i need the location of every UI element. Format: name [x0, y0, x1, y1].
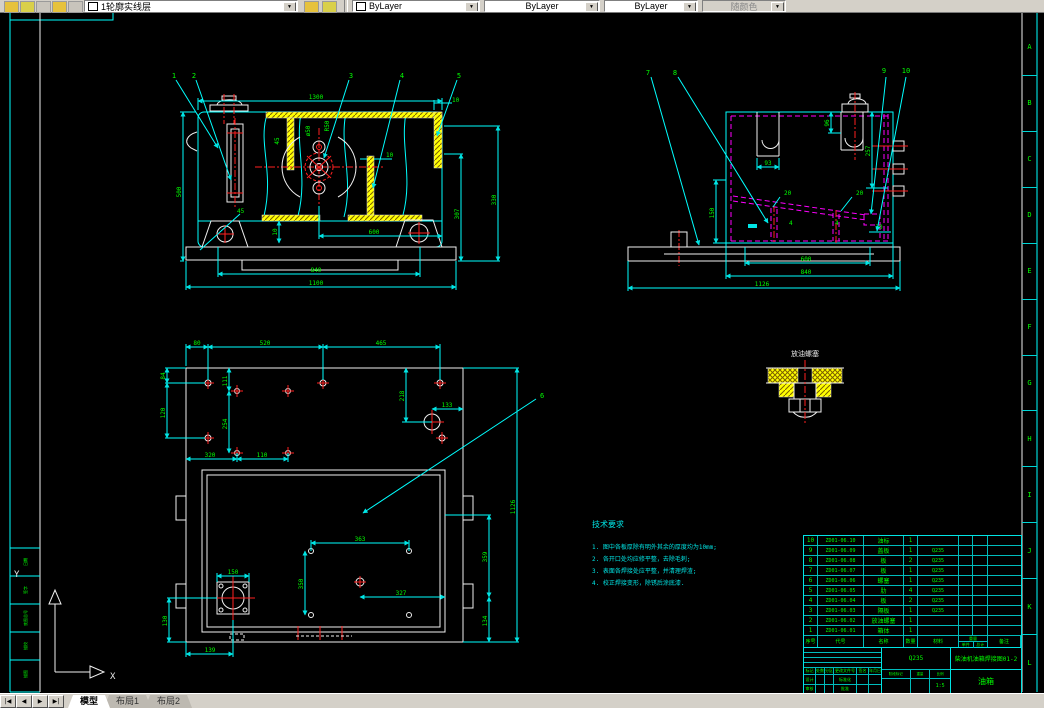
balloon-label: 9 [882, 67, 886, 75]
bom-total-weight [973, 546, 988, 555]
dim-label: 330 [491, 194, 498, 205]
model-space-canvas[interactable]: 日期 签字 底图总号 描校 描图 Y X [0, 12, 1044, 693]
weld-label: 4 [835, 220, 839, 227]
zone-label: K [1022, 579, 1037, 635]
lineweight-value: ByLayer [634, 1, 667, 11]
drawing-number: 柴油机油箱焊接图01-2 [951, 648, 1021, 670]
bom-remark [988, 596, 1021, 605]
zone-label: B [1022, 76, 1037, 132]
side-view: 96 257 93 150 20 20 30 4 4 600 840 1126 … [628, 67, 910, 291]
drawing-name: 油箱 [951, 670, 1021, 693]
dim-label: 45 [237, 208, 245, 215]
bom-unit-weight [959, 626, 973, 635]
dim-label: 84 [160, 372, 167, 380]
bom-remark [988, 626, 1021, 635]
bom-qty: 1 [904, 626, 918, 635]
tab-layout2[interactable]: 布局2 [145, 695, 192, 708]
bom-name: 盖板 [864, 546, 904, 555]
bom-no: 6 [804, 576, 818, 585]
layer-previous-icon[interactable] [322, 1, 337, 13]
bom-header-no: 序号 [804, 636, 818, 647]
weld-mark [748, 224, 757, 228]
bom-row: 2 ZD01-06.02 放油螺塞 1 [804, 616, 1021, 626]
bom-code: ZD01-06.04 [818, 596, 864, 605]
bom-total-weight [973, 586, 988, 595]
dim-label: 1100 [309, 280, 324, 287]
plan-holes [202, 377, 448, 640]
zone-label: G [1022, 356, 1037, 412]
dim-label: 500 [176, 186, 183, 197]
dim-label: 1126 [755, 281, 770, 288]
lineweight-dropdown[interactable]: ByLayer ▼ [604, 0, 698, 12]
dim-label: 600 [801, 256, 812, 263]
bom-no: 10 [804, 536, 818, 545]
bom-name: 油标 [864, 536, 904, 545]
dim-label: 218 [399, 390, 406, 401]
layer-plot-icon[interactable] [52, 1, 67, 13]
layer-name: 1轮廓实线层 [101, 0, 151, 12]
balloon-label: 7 [646, 69, 650, 77]
bom-material: Q235 [918, 546, 959, 555]
bom-remark [988, 556, 1021, 565]
layer-freeze-icon[interactable] [20, 1, 35, 13]
tab-last-button[interactable]: ▶| [48, 695, 64, 708]
revision-grid: 标记 处数 分区 更改文件号 签名 年月日 设计 标准化 审核 批准 [804, 648, 881, 693]
notes-title: 技术要求 [592, 519, 624, 529]
zone-label: D [1022, 188, 1037, 244]
bom-total-weight [973, 576, 988, 585]
dim-label: 80 [193, 340, 201, 347]
dim-label: 320 [205, 452, 216, 459]
front-dimensions: 1300 500 330 307 10 10 45 ø50 R50 45 10 … [176, 94, 500, 290]
oil-level-gauge [227, 118, 243, 208]
bom-no: 8 [804, 556, 818, 565]
toolbar-separator [344, 0, 348, 12]
bom-total-weight [973, 626, 988, 635]
bom-unit-weight [959, 596, 973, 605]
bom-remark [988, 566, 1021, 575]
layer-color-chip [88, 2, 98, 11]
balloon-label: 6 [540, 392, 544, 400]
linetype-value: ByLayer [525, 1, 558, 11]
plotstyle-value: 随颜色 [730, 0, 757, 12]
bom-remark [988, 586, 1021, 595]
linetype-dropdown[interactable]: ByLayer ▼ [484, 0, 600, 12]
bom-row: 3 ZD01-06.03 隔板 1 Q235 [804, 606, 1021, 616]
dim-label: 465 [376, 340, 387, 347]
plan-view: 80 520 465 84 120 111 254 218 133 320 11… [160, 340, 544, 657]
dim-label: ø50 [305, 125, 312, 136]
layer-properties-toolbar: 1轮廓实线层 ▼ ByLayer ▼ ByLayer ▼ ByLayer ▼ 随… [0, 0, 1044, 13]
dim-label: 520 [260, 340, 271, 347]
bom-qty: 1 [904, 536, 918, 545]
bom-name: 放油螺塞 [864, 616, 904, 625]
bom-header-name: 名称 [864, 636, 904, 647]
tb-approve: 批准 [834, 685, 857, 693]
dim-label: 1300 [309, 94, 324, 101]
color-swatch [356, 2, 366, 11]
bom-qty: 2 [904, 596, 918, 605]
balloon-leader [363, 399, 536, 513]
bom-header-material: 材料 [918, 636, 959, 647]
bom-code: ZD01-06.06 [818, 576, 864, 585]
zone-label: C [1022, 132, 1037, 188]
chevron-down-icon[interactable]: ▼ [465, 2, 478, 12]
filler-cap [210, 94, 248, 124]
bom-header-weight-group: 重量 单件 总计 [959, 636, 988, 647]
tb-material: Q235 [882, 648, 950, 670]
note-line: 1. 图中各板厚除有明外其余的厚度均为10mm; [592, 543, 717, 551]
tb-date: 年月日 [869, 668, 881, 674]
bom-row: 1 ZD01-06.01 箱体 1 [804, 626, 1021, 636]
bom-qty: 1 [904, 606, 918, 615]
bom-no: 9 [804, 546, 818, 555]
tb-audit: 审核 [804, 685, 816, 693]
dim-label: 133 [442, 402, 453, 409]
bom-unit-weight [959, 536, 973, 545]
bom-qty: 1 [904, 546, 918, 555]
ucs-icon: Y X [14, 570, 116, 682]
layer-visibility-icon[interactable] [4, 1, 19, 13]
balloon-label: 8 [673, 69, 677, 77]
zone-label: F [1022, 300, 1037, 356]
tb-zone: 分区 [825, 668, 834, 674]
bom-material [918, 626, 959, 635]
bom-no: 5 [804, 586, 818, 595]
bom-row: 7 ZD01-06.07 板 1 Q235 [804, 566, 1021, 576]
dim-label: 20 [856, 190, 864, 197]
internal-brackets [757, 112, 863, 156]
bom-total-weight [973, 606, 988, 615]
bom-qty: 4 [904, 586, 918, 595]
bom-total-weight [973, 566, 988, 575]
bom-row: 8 ZD01-06.08 板 2 Q235 [804, 556, 1021, 566]
weld-label: 4 [789, 220, 793, 227]
ucs-x-label: X [110, 672, 116, 682]
bom-name: 肋 [864, 586, 904, 595]
bom-material: Q235 [918, 586, 959, 595]
dim-label: R50 [324, 120, 331, 131]
bom-material: Q235 [918, 576, 959, 585]
bom-no: 2 [804, 616, 818, 625]
tb-scale-value: 1:5 [930, 679, 950, 693]
bom-code: ZD01-06.10 [818, 536, 864, 545]
bom-material: Q235 [918, 566, 959, 575]
bom-qty: 2 [904, 556, 918, 565]
bom-unit-weight [959, 546, 973, 555]
tb-scale-label: 比例 [930, 670, 950, 678]
strip-label: 描图 [22, 670, 28, 678]
balloon-label: 4 [400, 72, 404, 80]
chevron-down-icon[interactable]: ▼ [585, 2, 598, 12]
zone-label: I [1022, 467, 1037, 523]
make-layer-current-icon[interactable] [304, 1, 319, 13]
dim-label: 96 [824, 119, 831, 127]
strip-label: 签字 [22, 586, 28, 594]
bom-name: 箱体 [864, 626, 904, 635]
tab-first-button[interactable]: |◀ [0, 695, 16, 708]
layer-color-icon [68, 1, 83, 13]
tb-weight-label: 重量 [911, 670, 931, 678]
bom-total-weight [973, 616, 988, 625]
bom-unit-weight [959, 586, 973, 595]
note-line: 3. 表面各焊接处应平整，并清理焊渣; [592, 567, 696, 575]
front-balloons: 1 2 3 4 5 [172, 72, 461, 188]
balloon-label: 10 [902, 67, 910, 75]
ucs-y-label: Y [14, 570, 20, 580]
dim-label: 93 [764, 160, 772, 167]
strip-label: 日期 [22, 558, 28, 566]
bom-code: ZD01-06.02 [818, 616, 864, 625]
zone-column: ABCDEFGHIJKL [1022, 20, 1037, 690]
bom-name: 隔板 [864, 606, 904, 615]
layer-lock-icon[interactable] [36, 1, 51, 13]
bom-row: 9 ZD01-06.09 盖板 1 Q235 [804, 546, 1021, 556]
bom-unit-weight [959, 576, 973, 585]
bom-header: 序号 代号 名称 数量 材料 重量 单件 总计 备注 [804, 636, 1021, 648]
bom-header-remark: 备注 [988, 636, 1021, 647]
strip-label: 描校 [22, 642, 28, 650]
tb-design: 设计 [804, 675, 816, 684]
bom-code: ZD01-06.07 [818, 566, 864, 575]
mounting-feet [186, 220, 456, 270]
dim-label: 327 [396, 590, 407, 597]
bom-total-weight [973, 556, 988, 565]
bom-material: Q235 [918, 556, 959, 565]
zone-label: L [1022, 635, 1037, 690]
chevron-down-icon: ▼ [771, 2, 784, 12]
tab-next-button[interactable]: ▶ [32, 695, 48, 708]
dim-label: 30 [875, 224, 883, 231]
dim-label: 120 [160, 407, 167, 418]
lifting-hook [187, 132, 197, 151]
zone-label: H [1022, 411, 1037, 467]
bom-row: 10 ZD01-06.10 油标 1 [804, 536, 1021, 546]
bom-total-weight [973, 596, 988, 605]
bom-code: ZD01-06.03 [818, 606, 864, 615]
bom-code: ZD01-06.08 [818, 556, 864, 565]
color-value: ByLayer [369, 1, 402, 11]
dim-label: 254 [222, 418, 229, 429]
note-line: 2. 各开口处均应修平整，去除毛刺; [592, 555, 690, 563]
front-view: 1300 500 330 307 10 10 45 ø50 R50 45 10 … [172, 72, 500, 290]
dim-label: 257 [865, 145, 872, 156]
plotstyle-dropdown: 随颜色 ▼ [702, 0, 786, 12]
detail-title: 放油螺塞 [791, 349, 819, 358]
bom-rows: 10 ZD01-06.10 油标 1 9 ZD01-06.09 盖板 1 Q23… [804, 536, 1021, 636]
tab-model[interactable]: 模型 [68, 695, 110, 708]
zone-label: A [1022, 20, 1037, 76]
dim-label: 111 [222, 375, 229, 386]
dim-label: 363 [355, 536, 366, 543]
bom-material [918, 536, 959, 545]
dim-label: 20 [784, 190, 792, 197]
bom-row: 5 ZD01-06.05 肋 4 Q235 [804, 586, 1021, 596]
bom-remark [988, 616, 1021, 625]
bom-no: 7 [804, 566, 818, 575]
bom-remark [988, 536, 1021, 545]
bom-remark [988, 576, 1021, 585]
dim-label: 1126 [510, 499, 517, 514]
bom-material: Q235 [918, 606, 959, 615]
material-scale-block: Q235 阶段标记 重量 比例 1:5 [881, 648, 951, 693]
dim-label: 150 [709, 207, 716, 218]
dim-label: 350 [298, 578, 305, 589]
dim-label: 359 [482, 551, 489, 562]
bom-material: Q235 [918, 596, 959, 605]
tab-layout1[interactable]: 布局1 [104, 695, 151, 708]
color-dropdown[interactable]: ByLayer ▼ [352, 0, 480, 12]
bom-code: ZD01-06.09 [818, 546, 864, 555]
bom-qty: 1 [904, 576, 918, 585]
layout-tabbar: |◀ ◀ ▶ ▶| 模型 布局1 布局2 [0, 693, 1044, 708]
bom-name: 螺塞 [864, 576, 904, 585]
bom-remark [988, 546, 1021, 555]
dim-label: 10 [386, 152, 394, 159]
base-side [628, 232, 900, 261]
bom-no: 3 [804, 606, 818, 615]
bom-unit-weight [959, 556, 973, 565]
bom-total-weight [973, 536, 988, 545]
bom-unit-weight [959, 606, 973, 615]
tb-sign: 签名 [857, 668, 869, 674]
dim-label: 840 [801, 269, 812, 276]
tb-standardization: 标准化 [834, 675, 857, 684]
tb-stage-label: 阶段标记 [882, 670, 911, 678]
tb-doc: 更改文件号 [834, 668, 857, 674]
technical-notes: 技术要求 1. 图中各板厚除有明外其余的厚度均为10mm; 2. 各开口处均应修… [592, 519, 717, 587]
tb-mark: 标记 [804, 668, 816, 674]
zone-label: E [1022, 244, 1037, 300]
note-line: 4. 校正焊接变形，除锈后涂底漆. [592, 579, 684, 587]
dim-label: 307 [454, 208, 461, 219]
bom-name: 板 [864, 566, 904, 575]
bom-header-code: 代号 [818, 636, 864, 647]
bom-row: 4 ZD01-06.04 板 2 Q235 [804, 596, 1021, 606]
bom-qty: 1 [904, 566, 918, 575]
dim-label: 134 [482, 615, 489, 626]
tb-count: 处数 [816, 668, 825, 674]
dim-label: 45 [274, 137, 281, 145]
dim-label: 600 [369, 229, 380, 236]
dim-label: 840 [311, 267, 322, 274]
drawing-id-block: 柴油机油箱焊接图01-2 油箱 [951, 648, 1021, 693]
tab-prev-button[interactable]: ◀ [16, 695, 32, 708]
chevron-down-icon[interactable]: ▼ [683, 2, 696, 12]
dim-label: 150 [228, 569, 239, 576]
bom-name: 板 [864, 556, 904, 565]
strip-label: 底图总号 [22, 610, 28, 626]
bom-qty: 1 [904, 616, 918, 625]
bom-code: ZD01-06.01 [818, 626, 864, 635]
balloon-label: 1 [172, 72, 176, 80]
bom-row: 6 ZD01-06.06 螺塞 1 Q235 [804, 576, 1021, 586]
bom-material [918, 616, 959, 625]
dim-label: 130 [162, 615, 169, 626]
drain-flange [211, 576, 255, 622]
balloon-label: 5 [457, 72, 461, 80]
dim-label: 139 [205, 647, 216, 654]
dim-label: 110 [257, 452, 268, 459]
bom-no: 1 [804, 626, 818, 635]
parts-list: 10 ZD01-06.10 油标 1 9 ZD01-06.09 盖板 1 Q23… [803, 535, 1022, 694]
drain-plug-detail: 放油螺塞 [766, 349, 844, 424]
dim-label: 10 [272, 228, 279, 236]
zone-label: J [1022, 523, 1037, 579]
bom-no: 4 [804, 596, 818, 605]
plan-dimensions: 80 520 465 84 120 111 254 218 133 320 11… [160, 340, 519, 657]
bom-code: ZD01-06.05 [818, 586, 864, 595]
bom-remark [988, 606, 1021, 615]
dim-label: 10 [452, 97, 460, 104]
title-block: 标记 处数 分区 更改文件号 签名 年月日 设计 标准化 审核 批准 Q235 [804, 648, 1021, 693]
balloon-label: 3 [349, 72, 353, 80]
bom-unit-weight [959, 616, 973, 625]
bom-unit-weight [959, 566, 973, 575]
bom-header-qty: 数量 [904, 636, 918, 647]
balloon-label: 2 [192, 72, 196, 80]
bom-name: 板 [864, 596, 904, 605]
chevron-down-icon[interactable]: ▼ [283, 2, 296, 12]
layer-dropdown[interactable]: 1轮廓实线层 ▼ [84, 0, 298, 12]
